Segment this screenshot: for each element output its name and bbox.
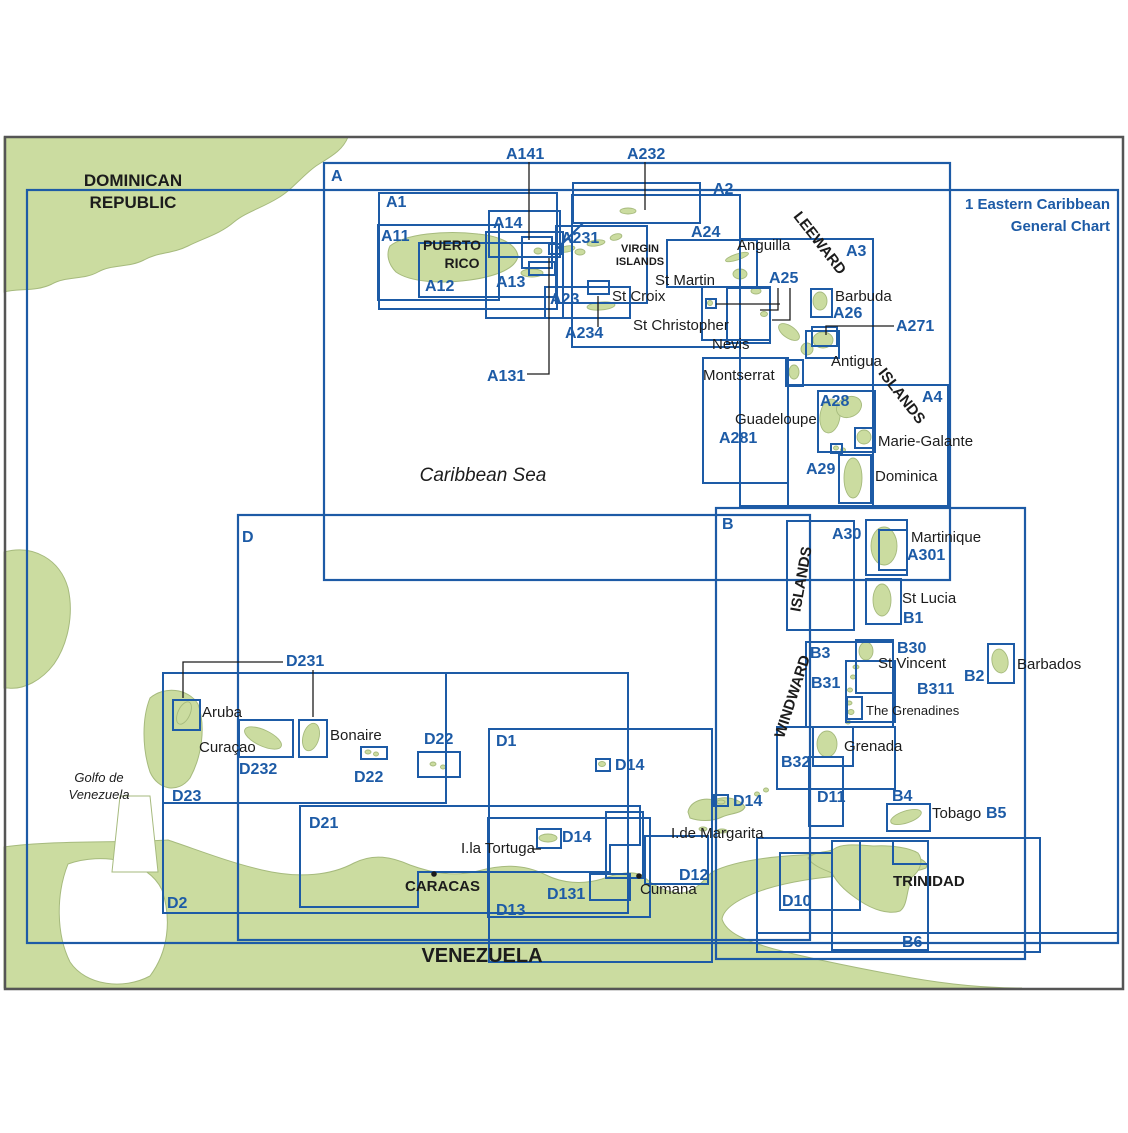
chart-label-b31-31: B31 — [811, 675, 840, 692]
chart-label-a281-20: A281 — [719, 430, 757, 447]
chart-label-a3-22: A3 — [846, 243, 867, 260]
chart-label-a231-11: A231 — [561, 230, 599, 247]
island-mustique — [851, 675, 856, 679]
chart-label-b32-33: B32 — [781, 754, 810, 771]
chart-label-a24-15: A24 — [691, 224, 720, 241]
chart-label-d13-43: D13 — [496, 902, 525, 919]
chart-label-d131-44: D131 — [547, 886, 585, 903]
island-st-lucia — [873, 584, 891, 616]
land-hispaniola — [4, 137, 348, 292]
water-maracaibo-channel — [112, 796, 158, 872]
chart-label-1-eastern-caribbean-0: 1 Eastern Caribbean — [965, 196, 1110, 213]
island-culebra — [534, 248, 542, 254]
chart-label-a29-21: A29 — [806, 461, 835, 478]
place-label-st-croix-8: St Croix — [612, 288, 666, 305]
chart-label-d22-50: D22 — [354, 769, 383, 786]
chart-label-a23-13: A23 — [550, 291, 579, 308]
chart-label-d232-53: D232 — [239, 761, 277, 778]
chart-label-b1-27: B1 — [903, 610, 924, 627]
chart-label-a232-12: A232 — [627, 146, 665, 163]
place-label-st-martin-7: St Martin — [655, 272, 715, 289]
place-label-i-la-tortuga-26: I.la Tortuga — [461, 840, 536, 857]
place-label-the-grenadines-21: The Grenadines — [866, 703, 960, 718]
island-martinique — [871, 527, 897, 565]
place-label-guadeloupe-14: Guadeloupe — [735, 411, 817, 428]
chart-label-b5-35: B5 — [986, 805, 1007, 822]
place-label-montserrat-11: Montserrat — [703, 367, 776, 384]
chart-label-d2-39: D2 — [167, 895, 188, 912]
chart-label-d231-52: D231 — [286, 653, 324, 670]
place-label-cura-ao-31: Curaçao — [199, 739, 256, 756]
island-saba — [708, 301, 713, 306]
eastern-caribbean-chart-index: 1 Eastern CaribbeanGeneral ChartAA1A11A1… — [0, 0, 1128, 1128]
place-label-grenada-22: Grenada — [844, 738, 903, 755]
chart-label-a26-17: A26 — [833, 305, 862, 322]
chart-label-b4-34: B4 — [892, 788, 913, 805]
chart-label-b-26: B — [722, 516, 734, 533]
caracas-dot — [431, 871, 437, 877]
chart-label-a301-25: A301 — [907, 547, 945, 564]
island-barbados — [990, 648, 1010, 674]
island-la-orchila-b — [441, 765, 446, 769]
chart-label-d-37: D — [242, 529, 254, 546]
chart-box-D22-box-east — [418, 752, 460, 777]
island-anegada — [620, 208, 636, 214]
chart-label-a-2: A — [331, 168, 343, 185]
place-label-barbuda-12: Barbuda — [835, 288, 892, 305]
chart-label-a30-24: A30 — [832, 526, 861, 543]
place-label-antigua-13: Antigua — [831, 353, 883, 370]
chart-label-a131-9: A131 — [487, 368, 525, 385]
place-label-barbados-20: Barbados — [1017, 656, 1081, 673]
island-tortuga — [539, 834, 557, 842]
island-los-testigos-b — [764, 788, 769, 792]
island-canouan — [848, 688, 853, 692]
island-carriacou — [848, 710, 854, 715]
chart-label-a234-14: A234 — [565, 325, 603, 342]
island-grenada — [817, 731, 837, 757]
island-la-blanquilla — [599, 762, 606, 767]
place-label-dominican-0: DOMINICAN — [84, 171, 182, 190]
land-guajira-peninsula — [4, 550, 70, 688]
island-bonaire — [300, 721, 323, 752]
island-st-vincent — [859, 642, 873, 660]
island-los-roques-a — [365, 750, 371, 754]
place-label-dominica-16: Dominica — [875, 468, 938, 485]
place-label-i-de-margarita-25: I.de Margarita — [671, 825, 764, 842]
chart-label-d14-45: D14 — [615, 757, 644, 774]
island-tobago — [889, 806, 923, 827]
island-marie-galante — [857, 430, 871, 444]
chart-label-d14-46: D14 — [733, 793, 762, 810]
chart-label-a14-7: A14 — [493, 215, 522, 232]
chart-label-general-chart-1: General Chart — [1011, 218, 1110, 235]
place-label-caracas-27: CARACAS — [405, 878, 480, 895]
chart-label-b311-32: B311 — [917, 681, 954, 698]
chart-label-b6-36: B6 — [902, 934, 923, 951]
chart-label-d23-51: D23 — [172, 788, 201, 805]
chart-label-a141-8: A141 — [506, 146, 544, 163]
chart-label-d21-48: D21 — [309, 815, 338, 832]
chart-label-d14-47: D14 — [562, 829, 591, 846]
chart-box-grenadines-box — [847, 697, 862, 719]
island-barbuda — [813, 292, 827, 310]
island-margarita-islet — [717, 800, 725, 804]
place-label-rico-3: RICO — [445, 255, 480, 271]
chart-label-a1-3: A1 — [386, 194, 407, 211]
place-label-aruba-30: Aruba — [202, 704, 243, 721]
place-label-republic-1: REPUBLIC — [90, 193, 177, 212]
place-label-nevis-10: Nevis — [712, 336, 750, 353]
place-label-islands-5: ISLANDS — [616, 256, 664, 268]
chart-label-a12-5: A12 — [425, 278, 454, 295]
chart-label-d22-49: D22 — [424, 731, 453, 748]
water-lago-de-maracaibo — [59, 859, 167, 984]
place-label-caribbean-sea-35: Caribbean Sea — [420, 465, 547, 486]
place-label-islands-37: ISLANDS — [875, 365, 929, 427]
place-label-st-lucia-18: St Lucia — [902, 590, 957, 607]
island-st-john — [575, 249, 585, 255]
cumana-dot — [636, 873, 642, 879]
place-label-martinique-17: Martinique — [911, 529, 981, 546]
chart-label-a25-16: A25 — [769, 270, 798, 287]
place-label-bonaire-32: Bonaire — [330, 727, 382, 744]
place-label-marie-galante-15: Marie-Galante — [878, 433, 973, 450]
chart-label-a2-10: A2 — [713, 181, 734, 198]
place-label-golfo-de-33: Golfo de — [74, 770, 123, 785]
D231-leader-a — [183, 662, 283, 698]
chart-label-b2-28: B2 — [964, 668, 985, 685]
place-label-venezuela-34: Venezuela — [69, 787, 130, 802]
chart-label-a271-18: A271 — [896, 318, 934, 335]
place-label-cumana-28: Cumana — [640, 881, 697, 898]
chart-label-a11-4: A11 — [381, 228, 410, 245]
place-label-st-christopher-9: St Christopher — [633, 317, 729, 334]
chart-label-d1-38: D1 — [496, 733, 517, 750]
place-label-puerto-2: PUERTO — [423, 237, 481, 253]
chart-label-d10-40: D10 — [782, 893, 811, 910]
chart-index-map: 1 Eastern CaribbeanGeneral ChartAA1A11A1… — [0, 0, 1128, 1128]
place-label-trinidad-24: TRINIDAD — [893, 873, 965, 890]
island-statia — [761, 312, 768, 317]
place-label-venezuela-29: VENEZUELA — [421, 945, 542, 967]
place-label-anguilla-6: Anguilla — [737, 237, 791, 254]
chart-label-a4-23: A4 — [922, 389, 943, 406]
chart-label-a13-6: A13 — [496, 274, 525, 291]
island-la-orchila-a — [430, 762, 436, 766]
island-virgin-gorda — [609, 233, 622, 242]
island-montserrat — [789, 365, 799, 379]
island-dominica — [844, 458, 862, 498]
place-label-tobago-23: Tobago — [932, 805, 981, 822]
island-st-kitts — [776, 320, 803, 344]
island-los-roques-b — [374, 752, 379, 756]
chart-label-a28-19: A28 — [820, 393, 849, 410]
place-label-virgin-4: VIRGIN — [621, 243, 659, 255]
place-label-leeward-36: LEEWARD — [790, 208, 850, 278]
place-label-st-vincent-19: St Vincent — [878, 655, 947, 672]
chart-label-d11-41: D11 — [817, 789, 846, 806]
island-les-saintes-a — [834, 446, 839, 450]
